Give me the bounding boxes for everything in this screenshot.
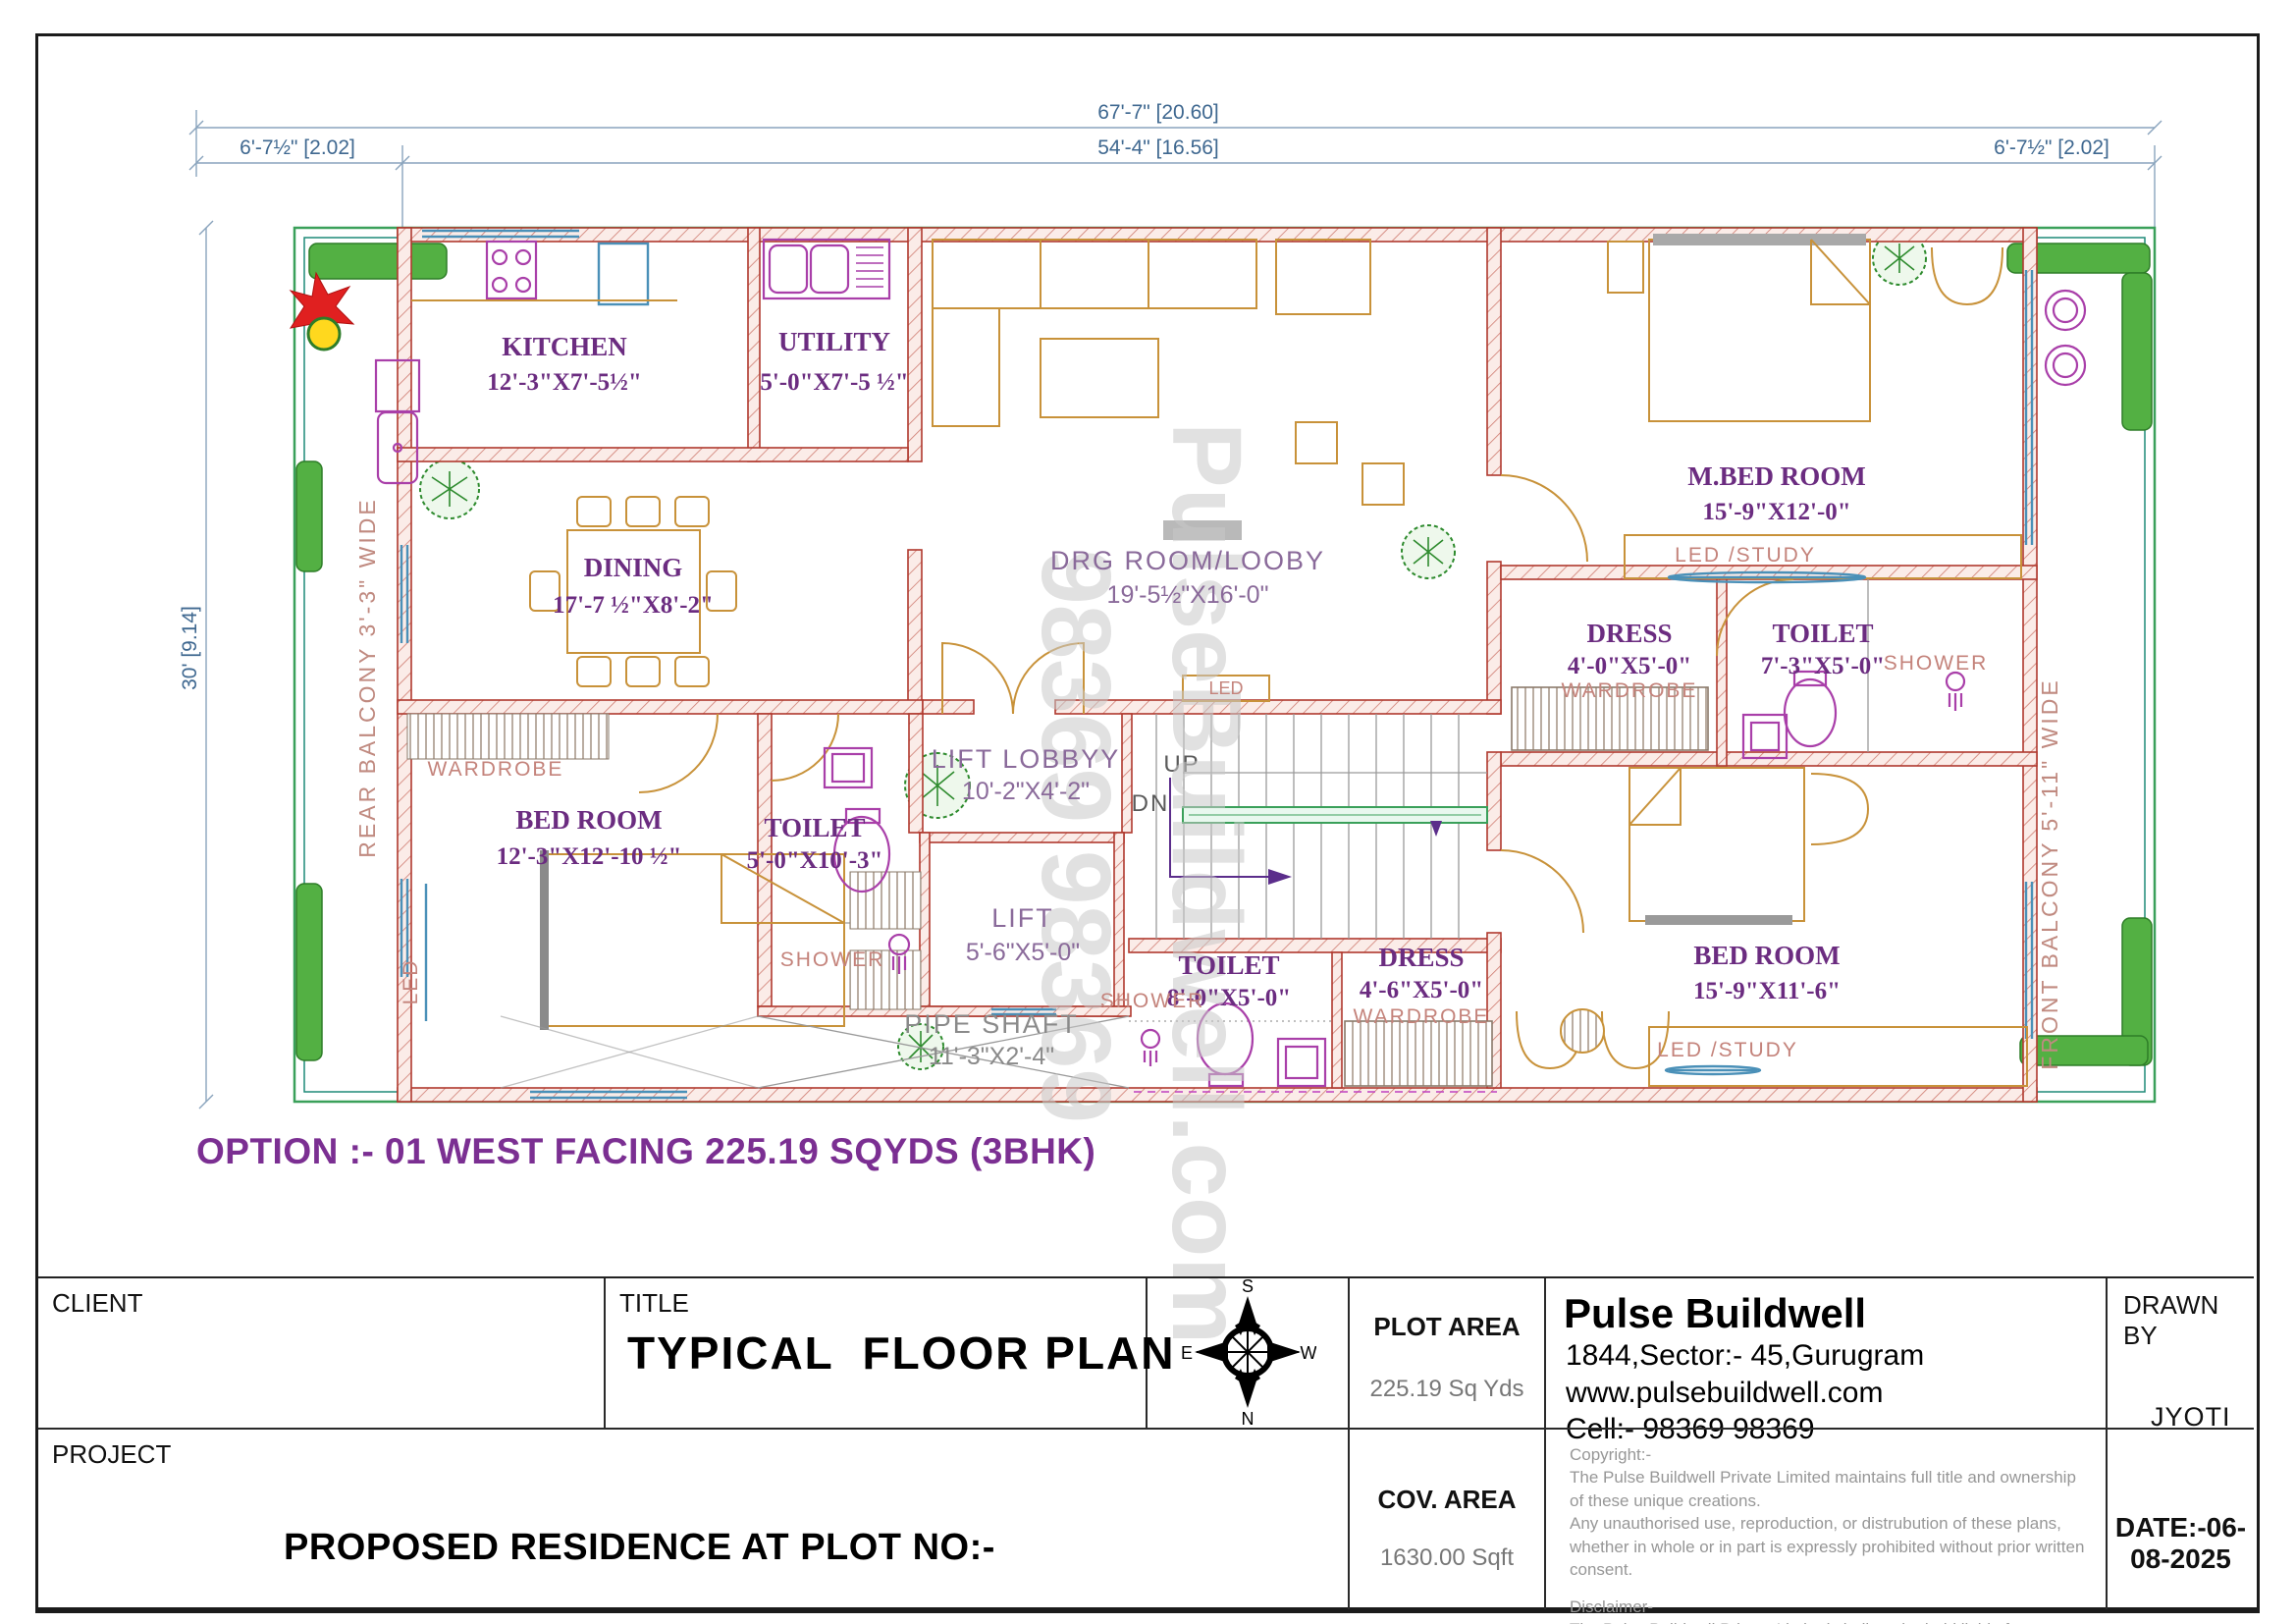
room-toilet3-name: TOILET bbox=[1178, 950, 1279, 980]
room-drg-name: DRG ROOM/LOOBY bbox=[1050, 546, 1325, 575]
drawn-by-label: DRAWN BY bbox=[2108, 1278, 2254, 1351]
room-utility-name: UTILITY bbox=[778, 327, 890, 356]
room-dining-name: DINING bbox=[584, 553, 683, 582]
room-dress2-name: DRESS bbox=[1378, 943, 1464, 972]
label-shower-2: SHOWER bbox=[780, 948, 885, 971]
copyright-line: of these unique creations. bbox=[1570, 1489, 2106, 1512]
date-value: DATE:-06-08-2025 bbox=[2108, 1512, 2254, 1575]
toilet1-fixtures bbox=[1743, 672, 1964, 758]
room-lift-name: LIFT bbox=[991, 903, 1054, 933]
drawn-by-value: JYOTI bbox=[2108, 1351, 2254, 1433]
dim-left-side: 6'-7½" [2.02] bbox=[240, 136, 355, 159]
client-cell: CLIENT bbox=[38, 1278, 606, 1428]
room-dining-size: 17'-7 ½"X8'-2" bbox=[553, 592, 714, 619]
date-cell: DATE:-06-08-2025 bbox=[2108, 1428, 2254, 1609]
room-lift-size: 5'-6"X5'-0" bbox=[966, 939, 1080, 966]
room-mbed-name: M.BED ROOM bbox=[1687, 461, 1866, 491]
title-cell: TITLE TYPICAL FLOOR PLAN bbox=[606, 1278, 1148, 1428]
dim-inner-width: 54'-4" [16.56] bbox=[1097, 136, 1219, 159]
room-mbed-size: 15'-9"X12'-0" bbox=[1702, 499, 1850, 525]
rear-balcony-label: REAR BALCONY 3'-3" WIDE bbox=[354, 497, 380, 857]
label-led-vertical: LED bbox=[400, 959, 422, 1005]
room-liftlobby-name: LIFT LOBBYY bbox=[932, 744, 1121, 774]
drawing-title: TYPICAL FLOOR PLAN bbox=[606, 1319, 1146, 1380]
cov-area-cell: COV. AREA 1630.00 Sqft bbox=[1350, 1428, 1546, 1609]
compass-e: E bbox=[1181, 1343, 1193, 1363]
utility-sink bbox=[764, 240, 889, 298]
project-label: PROJECT bbox=[38, 1430, 1348, 1470]
copyright-line: Any unauthorised use, reproduction, or d… bbox=[1570, 1512, 2106, 1535]
room-pipeshaft-size: 11'-3"X2'-4" bbox=[929, 1043, 1054, 1070]
compass-s: S bbox=[1242, 1278, 1254, 1296]
room-pipeshaft-name: PIPE SHAFT bbox=[904, 1009, 1079, 1039]
dim-height: 30' [9.14] bbox=[179, 606, 201, 690]
dress2-wardrobe bbox=[1345, 1021, 1492, 1086]
disclaimer-line: The Pulse Buildwell Private Limited shal… bbox=[1570, 1618, 2106, 1624]
label-led-study-1: LED /STUDY bbox=[1675, 544, 1816, 567]
room-bed1-size: 12'-3"X12'-10 ½" bbox=[497, 843, 682, 870]
plot-area-label: PLOT AREA bbox=[1350, 1312, 1544, 1342]
room-dress1-size: 4'-0"X5'-0" bbox=[1568, 653, 1691, 679]
dim-right-side: 6'-7½" [2.02] bbox=[1994, 136, 2109, 159]
room-toilet1-name: TOILET bbox=[1772, 619, 1873, 648]
company-name: Pulse Buildwell bbox=[1546, 1278, 2106, 1337]
room-toilet2-size: 5'-0"X10'-3" bbox=[747, 847, 883, 874]
drawn-by-cell: DRAWN BY JYOTI bbox=[2108, 1278, 2254, 1428]
dim-overall-width: 67'-7" [20.60] bbox=[1097, 101, 1219, 124]
cov-area-value: 1630.00 Sqft bbox=[1350, 1544, 1544, 1572]
plot-area-cell: PLOT AREA 225.19 Sq Yds bbox=[1350, 1278, 1546, 1428]
label-led-study-2: LED /STUDY bbox=[1657, 1039, 1798, 1061]
label-shower-1: SHOWER bbox=[1884, 652, 1989, 675]
company-website: www.pulsebuildwell.com bbox=[1546, 1375, 2106, 1412]
cov-area-label: COV. AREA bbox=[1350, 1485, 1544, 1515]
client-label: CLIENT bbox=[38, 1278, 604, 1319]
room-kitchen-size: 12'-3"X7'-5½" bbox=[487, 369, 642, 396]
flower-plant bbox=[291, 273, 353, 350]
room-toilet1-size: 7'-3"X5'-0" bbox=[1761, 653, 1885, 679]
company-address: 1844,Sector:- 45,Gurugram bbox=[1546, 1337, 2106, 1375]
label-wardrobe-2: WARDROBE bbox=[428, 758, 564, 781]
room-bed1-name: BED ROOM bbox=[515, 805, 662, 835]
room-utility-size: 5'-0"X7'-5 ½" bbox=[760, 369, 908, 396]
project-cell: PROJECT PROPOSED RESIDENCE AT PLOT NO:- bbox=[38, 1428, 1350, 1609]
plot-area-value: 225.19 Sq Yds bbox=[1350, 1376, 1544, 1403]
copyright-line: Copyright:- bbox=[1570, 1443, 2106, 1466]
option-note: OPTION :- 01 WEST FACING 225.19 SQYDS (3… bbox=[196, 1131, 1095, 1172]
label-led-niche: LED bbox=[1208, 678, 1243, 698]
front-balcony-label: FRONT BALCONY 5'-11" WIDE bbox=[2037, 677, 2062, 1069]
label-wardrobe-1: WARDROBE bbox=[1562, 679, 1698, 702]
copyright-line: The Pulse Buildwell Private Limited main… bbox=[1570, 1466, 2106, 1489]
room-drg-size: 19'-5½"X16'-0" bbox=[1107, 581, 1269, 609]
project-value: PROPOSED RESIDENCE AT PLOT NO:- bbox=[284, 1527, 1348, 1569]
disclaimer-line: Disclaimer- bbox=[1570, 1596, 2106, 1618]
room-dress1-name: DRESS bbox=[1586, 619, 1672, 648]
room-dress2-size: 4'-6"X5'-0" bbox=[1360, 977, 1483, 1003]
label-shower-3: SHOWER bbox=[1100, 990, 1205, 1012]
compass-n: N bbox=[1242, 1409, 1255, 1426]
room-liftlobby-size: 10'-2"X4'-2" bbox=[962, 778, 1090, 805]
company-cell: Pulse Buildwell 1844,Sector:- 45,Gurugra… bbox=[1546, 1278, 2108, 1428]
room-bed2-name: BED ROOM bbox=[1693, 941, 1840, 970]
compass-w: W bbox=[1301, 1343, 1317, 1363]
compass-icon: S N E W bbox=[1179, 1278, 1316, 1426]
label-wardrobe-3: WARDROBE bbox=[1354, 1005, 1490, 1028]
title-label: TITLE bbox=[606, 1278, 1146, 1319]
copyright-cell: Copyright:- The Pulse Buildwell Private … bbox=[1546, 1428, 2108, 1609]
drawing-sheet: 67'-7" [20.60] 6'-7½" [2.02] 54'-4" [16.… bbox=[0, 0, 2296, 1624]
copyright-line: whether in whole or in part is expressly… bbox=[1570, 1536, 2106, 1582]
title-block: CLIENT TITLE TYPICAL FLOOR PLAN S N E bbox=[38, 1276, 2254, 1609]
room-toilet2-name: TOILET bbox=[764, 813, 865, 842]
room-bed2-size: 15'-9"X11'-6" bbox=[1693, 978, 1841, 1004]
room-kitchen-name: KITCHEN bbox=[502, 332, 627, 361]
compass-cell: S N E W bbox=[1148, 1278, 1350, 1428]
